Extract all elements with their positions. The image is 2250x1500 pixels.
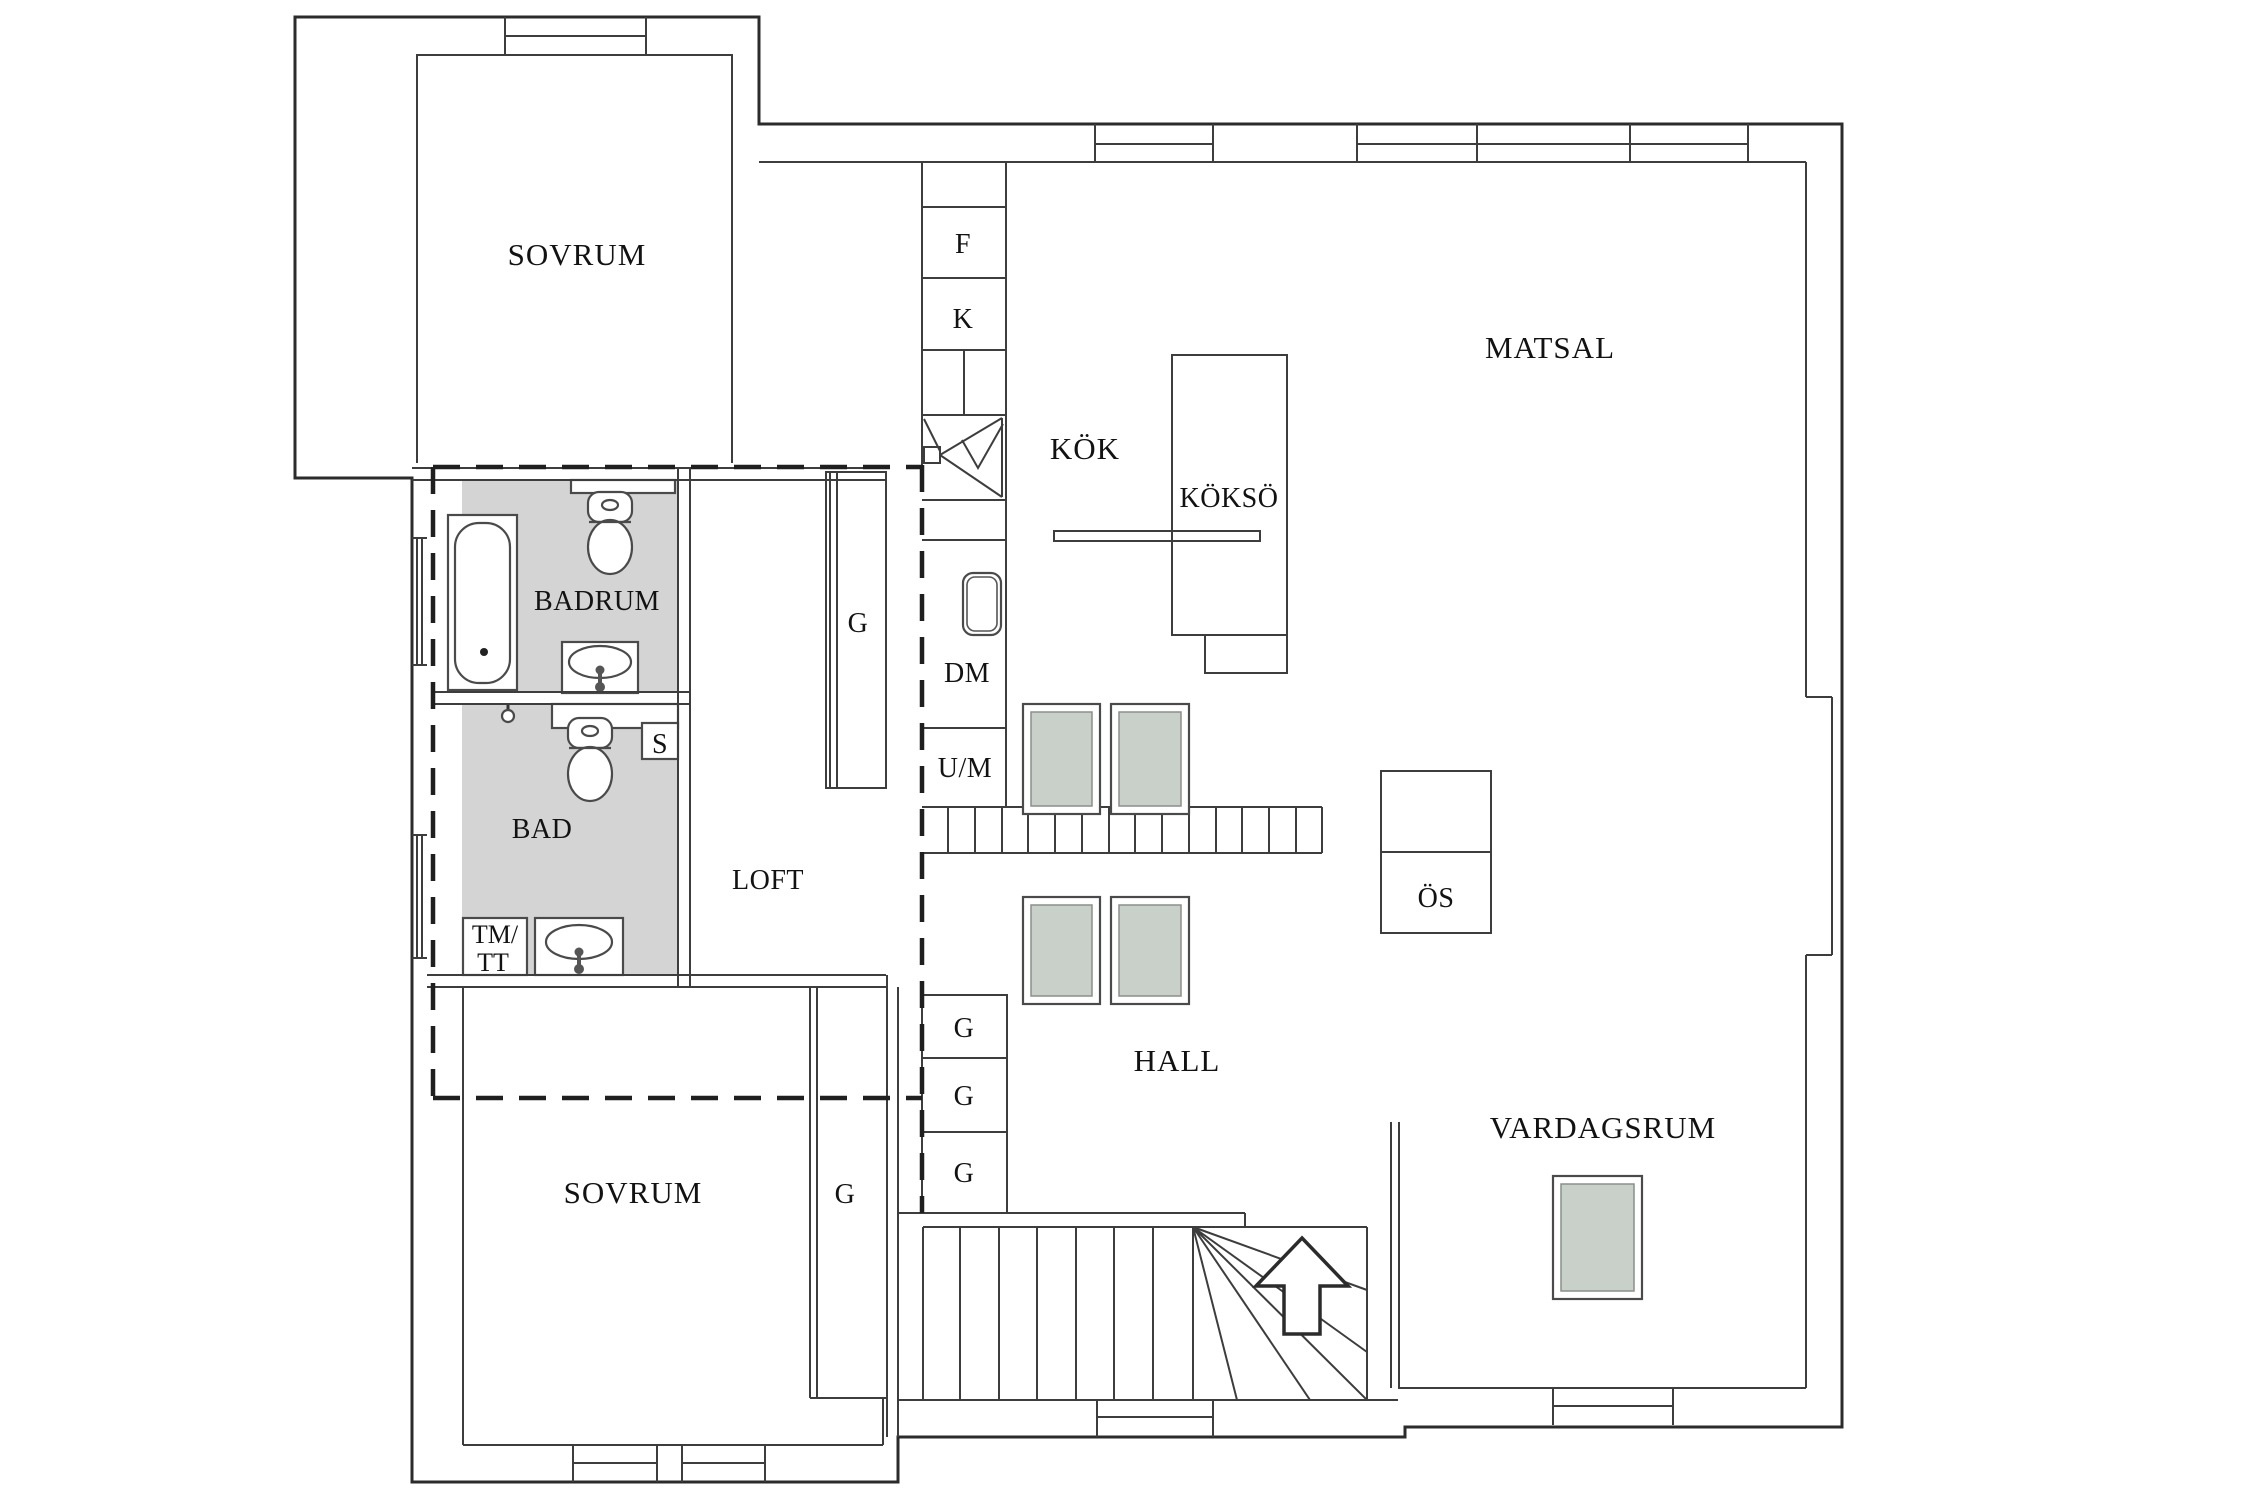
label-loft: LOFT xyxy=(732,865,804,896)
matsal-half-wall xyxy=(1054,531,1260,541)
skylight-glass xyxy=(1031,905,1092,996)
label-matsal: MATSAL xyxy=(1485,330,1615,365)
floor-plan: SOVRUM BADRUM BAD LOFT SOVRUM KÖK KÖKSÖ … xyxy=(0,0,2250,1500)
window-vardagsrum xyxy=(1553,1388,1673,1425)
label-kok: KÖK xyxy=(1050,431,1120,466)
toilet-bowl-badrum xyxy=(588,520,632,574)
window-sovrum-lower-2 xyxy=(682,1445,765,1482)
label-freezer: K xyxy=(953,304,974,335)
right-wall-window xyxy=(1806,697,1832,955)
label-sovrum-lower: SOVRUM xyxy=(564,1175,703,1210)
label-um: U/M xyxy=(938,753,992,784)
window-kok-top xyxy=(1095,124,1213,162)
window-left-bad xyxy=(412,835,427,958)
label-wardrobe-3: G xyxy=(954,1158,975,1189)
label-fireplace: ÖS xyxy=(1418,883,1455,914)
sink-faucet-knob-bad xyxy=(575,948,584,957)
bathtub-drain xyxy=(480,648,488,656)
window-sovrum-upper-top xyxy=(505,17,646,55)
toilet-button-bad xyxy=(582,726,598,736)
window-under-stairs xyxy=(1097,1400,1213,1437)
stair-treads xyxy=(960,1227,1193,1400)
staircase xyxy=(898,1213,1367,1400)
center-wall-west xyxy=(887,975,898,1437)
label-closet-s: S xyxy=(652,729,668,760)
label-wardrobe-upper: G xyxy=(848,608,869,639)
label-wardrobe-1: G xyxy=(954,1013,975,1044)
label-bad: BAD xyxy=(512,814,573,845)
label-washer-line2: TT xyxy=(477,948,509,977)
window-left-badrum xyxy=(412,538,427,665)
sovrum-upper-bottom-wall xyxy=(412,468,886,480)
stair-direction-arrow-icon xyxy=(1256,1238,1348,1334)
toilet-bowl-bad xyxy=(568,747,612,801)
wet-block-right-wall xyxy=(678,468,690,987)
skylight-glass xyxy=(1119,712,1181,806)
label-sovrum-upper: SOVRUM xyxy=(508,237,647,272)
sink-drain-badrum xyxy=(595,682,605,692)
sovrum-lower-walls xyxy=(463,987,883,1445)
label-dishwasher: DM xyxy=(944,658,990,689)
sink-drain-bad xyxy=(574,964,584,974)
label-wardrobe-2: G xyxy=(954,1081,975,1112)
stair-winders xyxy=(1193,1227,1367,1400)
kitchen-sink-icon xyxy=(963,573,1001,635)
kitchen-island-extension xyxy=(1205,635,1287,673)
label-kokso: KÖKSÖ xyxy=(1180,483,1279,514)
skylight-glass xyxy=(1031,712,1092,806)
toilet-button-badrum xyxy=(602,500,618,510)
window-sovrum-lower-1 xyxy=(573,1445,657,1482)
label-hall: HALL xyxy=(1134,1043,1221,1078)
window-matsal-top xyxy=(1357,124,1748,162)
label-vardagsrum: VARDAGSRUM xyxy=(1490,1110,1717,1145)
hall-vardagsrum-wall xyxy=(1391,1122,1399,1388)
skylight-glass xyxy=(1119,905,1181,996)
label-wardrobe-lower: G xyxy=(835,1179,856,1210)
sink-faucet-knob-badrum xyxy=(596,666,605,675)
vardagsrum-rug xyxy=(1553,1176,1642,1299)
label-washer-line1: TM/ xyxy=(472,920,519,949)
bathtub-basin xyxy=(455,523,510,683)
label-badrum: BADRUM xyxy=(534,586,660,617)
label-fridge: F xyxy=(955,229,971,260)
shower-mixer-icon xyxy=(502,710,514,722)
corner-cabinet-icon xyxy=(924,418,1003,497)
